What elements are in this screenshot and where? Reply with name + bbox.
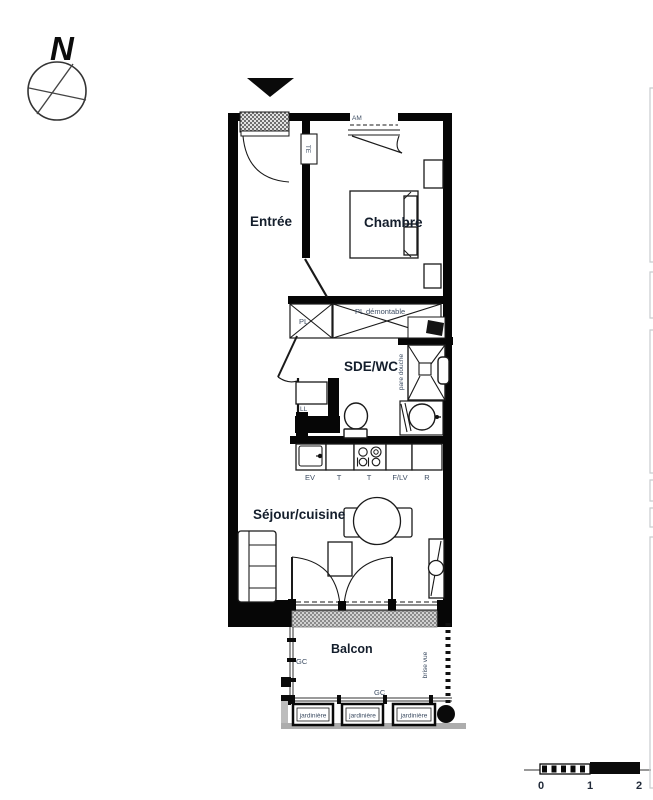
- r-label: R: [424, 473, 430, 482]
- nightstand: [424, 160, 443, 188]
- ev-label: EV: [305, 473, 315, 482]
- room-label-balcon: Balcon: [331, 642, 373, 656]
- scale-tick-2: 2: [636, 780, 642, 792]
- sde-door: [278, 336, 297, 382]
- compass-circle: [28, 62, 86, 120]
- planter-circle: [437, 705, 455, 723]
- gc-bottom-label: GC: [374, 688, 386, 697]
- toilet: [344, 403, 368, 438]
- jardiniere-box: jardinière: [342, 704, 383, 725]
- gc-left-label: GC: [296, 657, 308, 666]
- north-arrow: N: [28, 30, 86, 120]
- balcony-hatch-band: [292, 611, 437, 627]
- duct: [408, 317, 445, 338]
- floor-plan-drawing: N AM: [0, 0, 653, 800]
- t2-label: T: [367, 473, 372, 482]
- room-label-chambre: Chambre: [364, 215, 423, 230]
- balcony: brise vue GC GC: [281, 611, 452, 706]
- ll-label: LL: [300, 406, 308, 413]
- cooktop: [354, 444, 386, 470]
- nightstand: [424, 264, 441, 288]
- scale-tick-1: 1: [587, 780, 593, 792]
- coffee-table: [328, 542, 352, 576]
- entry-door: [240, 112, 289, 182]
- t1-label: T: [337, 473, 342, 482]
- washing-machine: [296, 382, 327, 404]
- cabinet-r: [412, 444, 442, 470]
- faucet: [318, 454, 322, 458]
- jardiniere-label: jardinière: [400, 713, 428, 720]
- jardiniere-label: jardinière: [348, 713, 376, 720]
- room-label-sejour-cuisine: Séjour/cuisine: [253, 507, 346, 522]
- pl-label: PL: [299, 317, 308, 326]
- floor-plan-page: N AM: [0, 0, 653, 800]
- dining-set: [344, 498, 412, 545]
- chambre-door: [305, 259, 327, 297]
- room-label-entree: Entrée: [250, 214, 293, 229]
- entrance-arrow-icon: [247, 78, 294, 97]
- jardiniere-label: jardinière: [299, 713, 327, 720]
- jardiniere-box: jardinière: [293, 704, 333, 725]
- vanity-sink: [400, 401, 443, 435]
- kitchen-counter: [296, 444, 442, 470]
- pl-demontable-label: PL démontable: [355, 307, 405, 316]
- dining-table: [354, 498, 401, 545]
- compass-needle-1: [37, 64, 73, 114]
- compass-needle-2: [29, 88, 86, 100]
- am-label: AM: [352, 115, 362, 122]
- cabinet-flv: [386, 444, 412, 470]
- heater: [429, 539, 445, 598]
- shower: [408, 345, 449, 400]
- flv-label: F/LV: [392, 473, 407, 482]
- jardiniere-box: jardinière: [393, 704, 435, 725]
- te-label: TE: [304, 145, 311, 154]
- sofa: [238, 531, 276, 602]
- scale-bar: 0 1 2: [524, 762, 651, 792]
- brise-vue-label: brise vue: [422, 651, 429, 678]
- chambre-window: AM: [348, 115, 402, 153]
- shower-door-handle: [438, 357, 449, 384]
- french-doors: [288, 557, 437, 611]
- pillow: [404, 227, 417, 255]
- pare-douche-label: pare douche: [398, 354, 405, 391]
- shower-drain: [419, 363, 431, 375]
- room-label-sde-wc: SDE/WC: [344, 359, 398, 374]
- scale-tick-0: 0: [538, 780, 544, 792]
- planters-row: jardinière jardinière jardinière: [281, 701, 466, 729]
- closet-pl: [290, 304, 332, 338]
- te-panel: TE: [301, 134, 317, 164]
- cabinet-t1: [326, 444, 354, 470]
